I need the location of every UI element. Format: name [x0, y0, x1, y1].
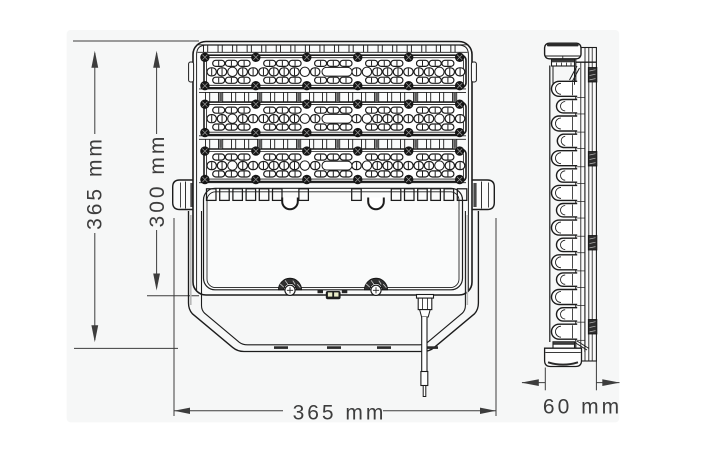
- svg-text:60 mm: 60 mm: [543, 396, 622, 419]
- svg-text:300 mm: 300 mm: [146, 134, 169, 228]
- svg-text:365 mm: 365 mm: [84, 136, 107, 230]
- svg-text:365 mm: 365 mm: [293, 401, 387, 424]
